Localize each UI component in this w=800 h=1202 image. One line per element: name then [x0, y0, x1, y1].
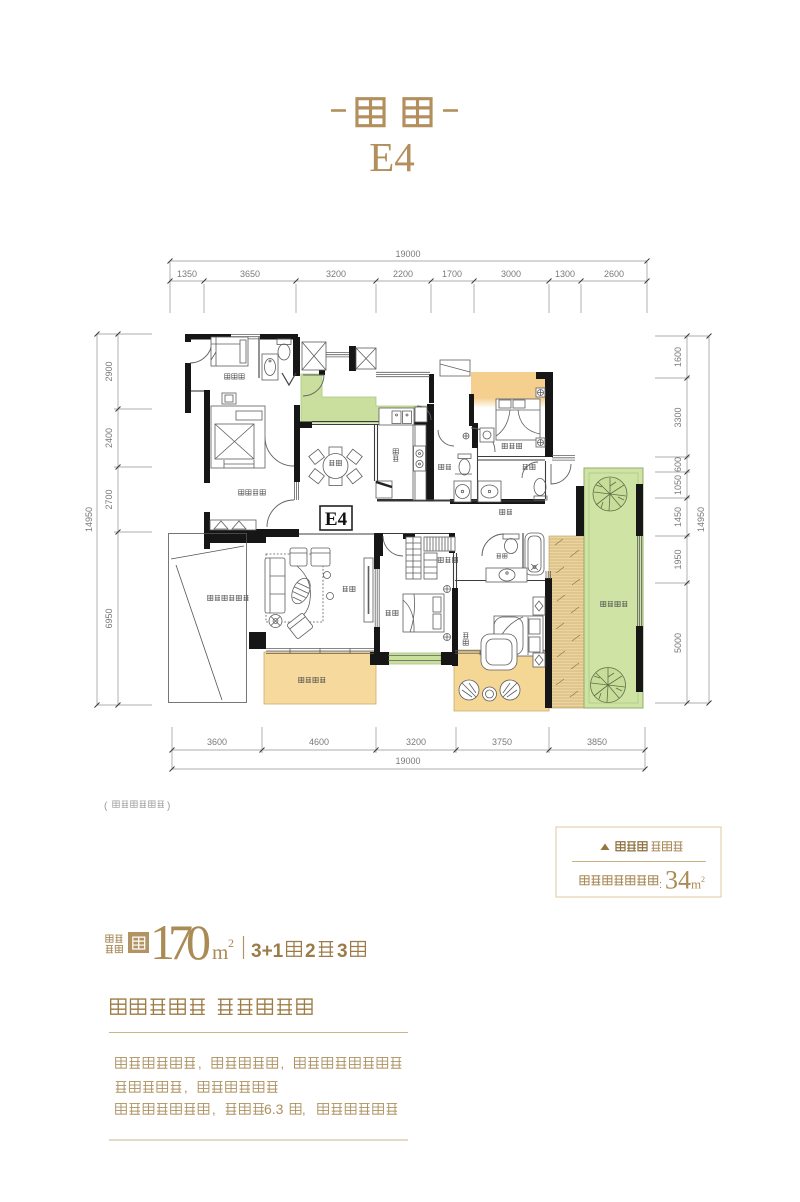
svg-text:2200: 2200 — [393, 269, 413, 279]
svg-text:170: 170 — [150, 914, 211, 970]
svg-text:,: , — [184, 1080, 188, 1095]
svg-text:2400: 2400 — [104, 428, 114, 448]
svg-text:3+1: 3+1 — [251, 941, 284, 962]
svg-text:3600: 3600 — [207, 737, 227, 747]
svg-text:2900: 2900 — [104, 361, 114, 381]
svg-text:3200: 3200 — [406, 737, 426, 747]
svg-text:3850: 3850 — [587, 737, 607, 747]
svg-text::: : — [659, 879, 662, 891]
svg-text:1450: 1450 — [673, 507, 683, 527]
svg-text:19000: 19000 — [395, 249, 420, 259]
svg-text:3650: 3650 — [240, 269, 260, 279]
svg-text:4600: 4600 — [309, 737, 329, 747]
svg-text:m: m — [212, 940, 228, 964]
svg-text:3000: 3000 — [501, 269, 521, 279]
svg-text:3750: 3750 — [492, 737, 512, 747]
svg-text:600: 600 — [673, 457, 683, 472]
svg-text:1600: 1600 — [673, 347, 683, 367]
svg-text:,: , — [212, 1102, 216, 1117]
svg-text:3: 3 — [337, 941, 348, 962]
svg-text:): ) — [167, 801, 170, 812]
svg-text:3200: 3200 — [326, 269, 346, 279]
svg-text:E4: E4 — [325, 509, 348, 530]
svg-text:2: 2 — [305, 941, 316, 962]
svg-text:14950: 14950 — [696, 507, 706, 532]
svg-text:34: 34 — [665, 866, 691, 895]
svg-text:E4: E4 — [369, 134, 415, 180]
svg-text:2600: 2600 — [604, 269, 624, 279]
svg-text:19000: 19000 — [395, 756, 420, 766]
svg-text:2: 2 — [701, 875, 705, 884]
svg-text:1700: 1700 — [442, 269, 462, 279]
svg-text:6.3: 6.3 — [264, 1101, 284, 1117]
svg-text:,: , — [198, 1056, 202, 1071]
svg-text:2: 2 — [228, 936, 234, 950]
svg-text:1350: 1350 — [177, 269, 197, 279]
svg-text:1300: 1300 — [555, 269, 575, 279]
svg-text:1050: 1050 — [673, 475, 683, 495]
svg-text:14950: 14950 — [84, 507, 94, 532]
svg-text:,: , — [302, 1102, 306, 1117]
svg-text:m: m — [691, 877, 701, 892]
svg-text:1950: 1950 — [673, 549, 683, 569]
svg-text:2700: 2700 — [104, 489, 114, 509]
svg-text:3300: 3300 — [673, 407, 683, 427]
svg-text:5000: 5000 — [673, 633, 683, 653]
svg-text:6950: 6950 — [104, 608, 114, 628]
svg-text:,: , — [281, 1056, 285, 1071]
